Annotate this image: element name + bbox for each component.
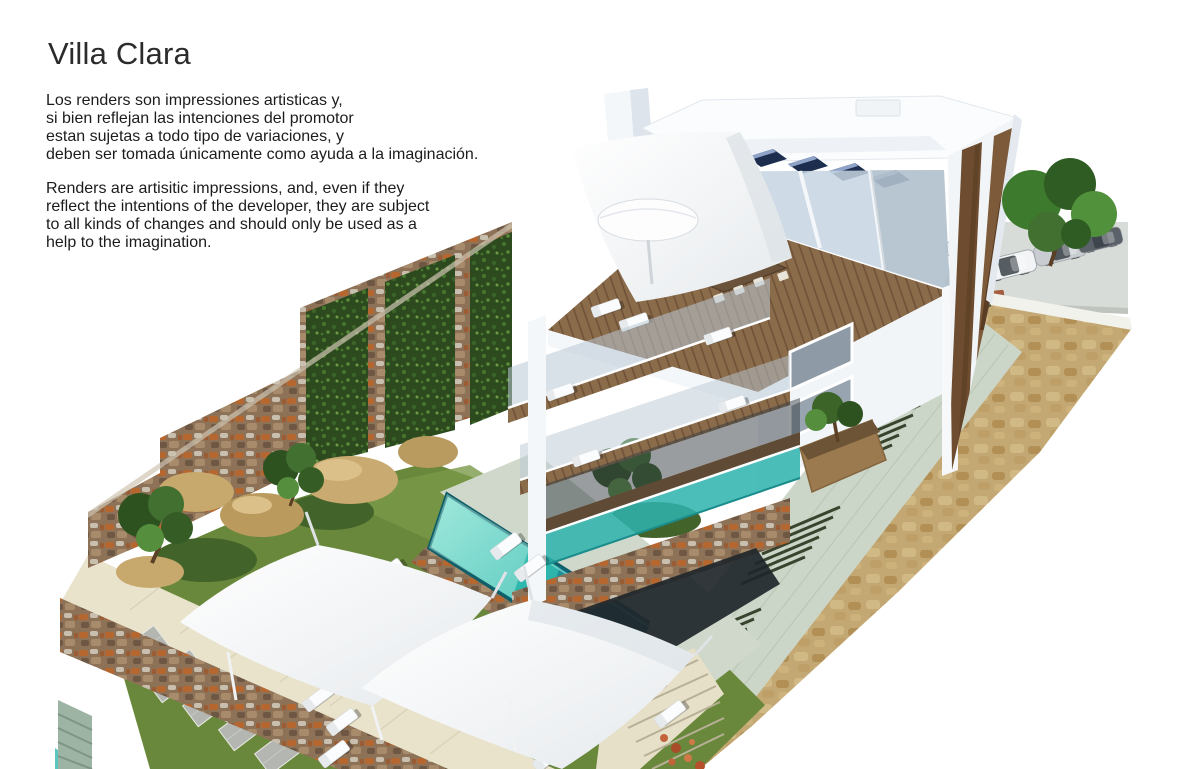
page: { "page_title": "Villa Clara", "disclaim… — [0, 0, 1203, 769]
page-title: Villa Clara — [48, 36, 546, 72]
disclaimer-es-line-2: si bien reflejan las intenciones del pro… — [46, 110, 546, 128]
disclaimer-en-line-2: reflect the intentions of the developer,… — [46, 198, 546, 216]
disclaimer-en-line-1: Renders are artisitic impressions, and, … — [46, 180, 546, 198]
disclaimer-en-line-4: help to the imagination. — [46, 234, 546, 252]
disclaimer-es-line-4: deben ser tomada únicamente como ayuda a… — [46, 146, 546, 164]
green-wall-panel — [385, 255, 455, 448]
green-wall-panel — [306, 288, 368, 468]
disclaimer-es-line-1: Los renders son impressiones artisticas … — [46, 92, 546, 110]
disclaimer-es-line-3: estan sujetas a todo tipo de variaciones… — [46, 128, 546, 146]
intro-text-block: Villa Clara Los renders son impressiones… — [46, 36, 546, 268]
corner-steps — [58, 700, 92, 769]
roof-unit — [856, 100, 900, 116]
disclaimer-en-line-3: to all kinds of changes and should only … — [46, 216, 546, 234]
